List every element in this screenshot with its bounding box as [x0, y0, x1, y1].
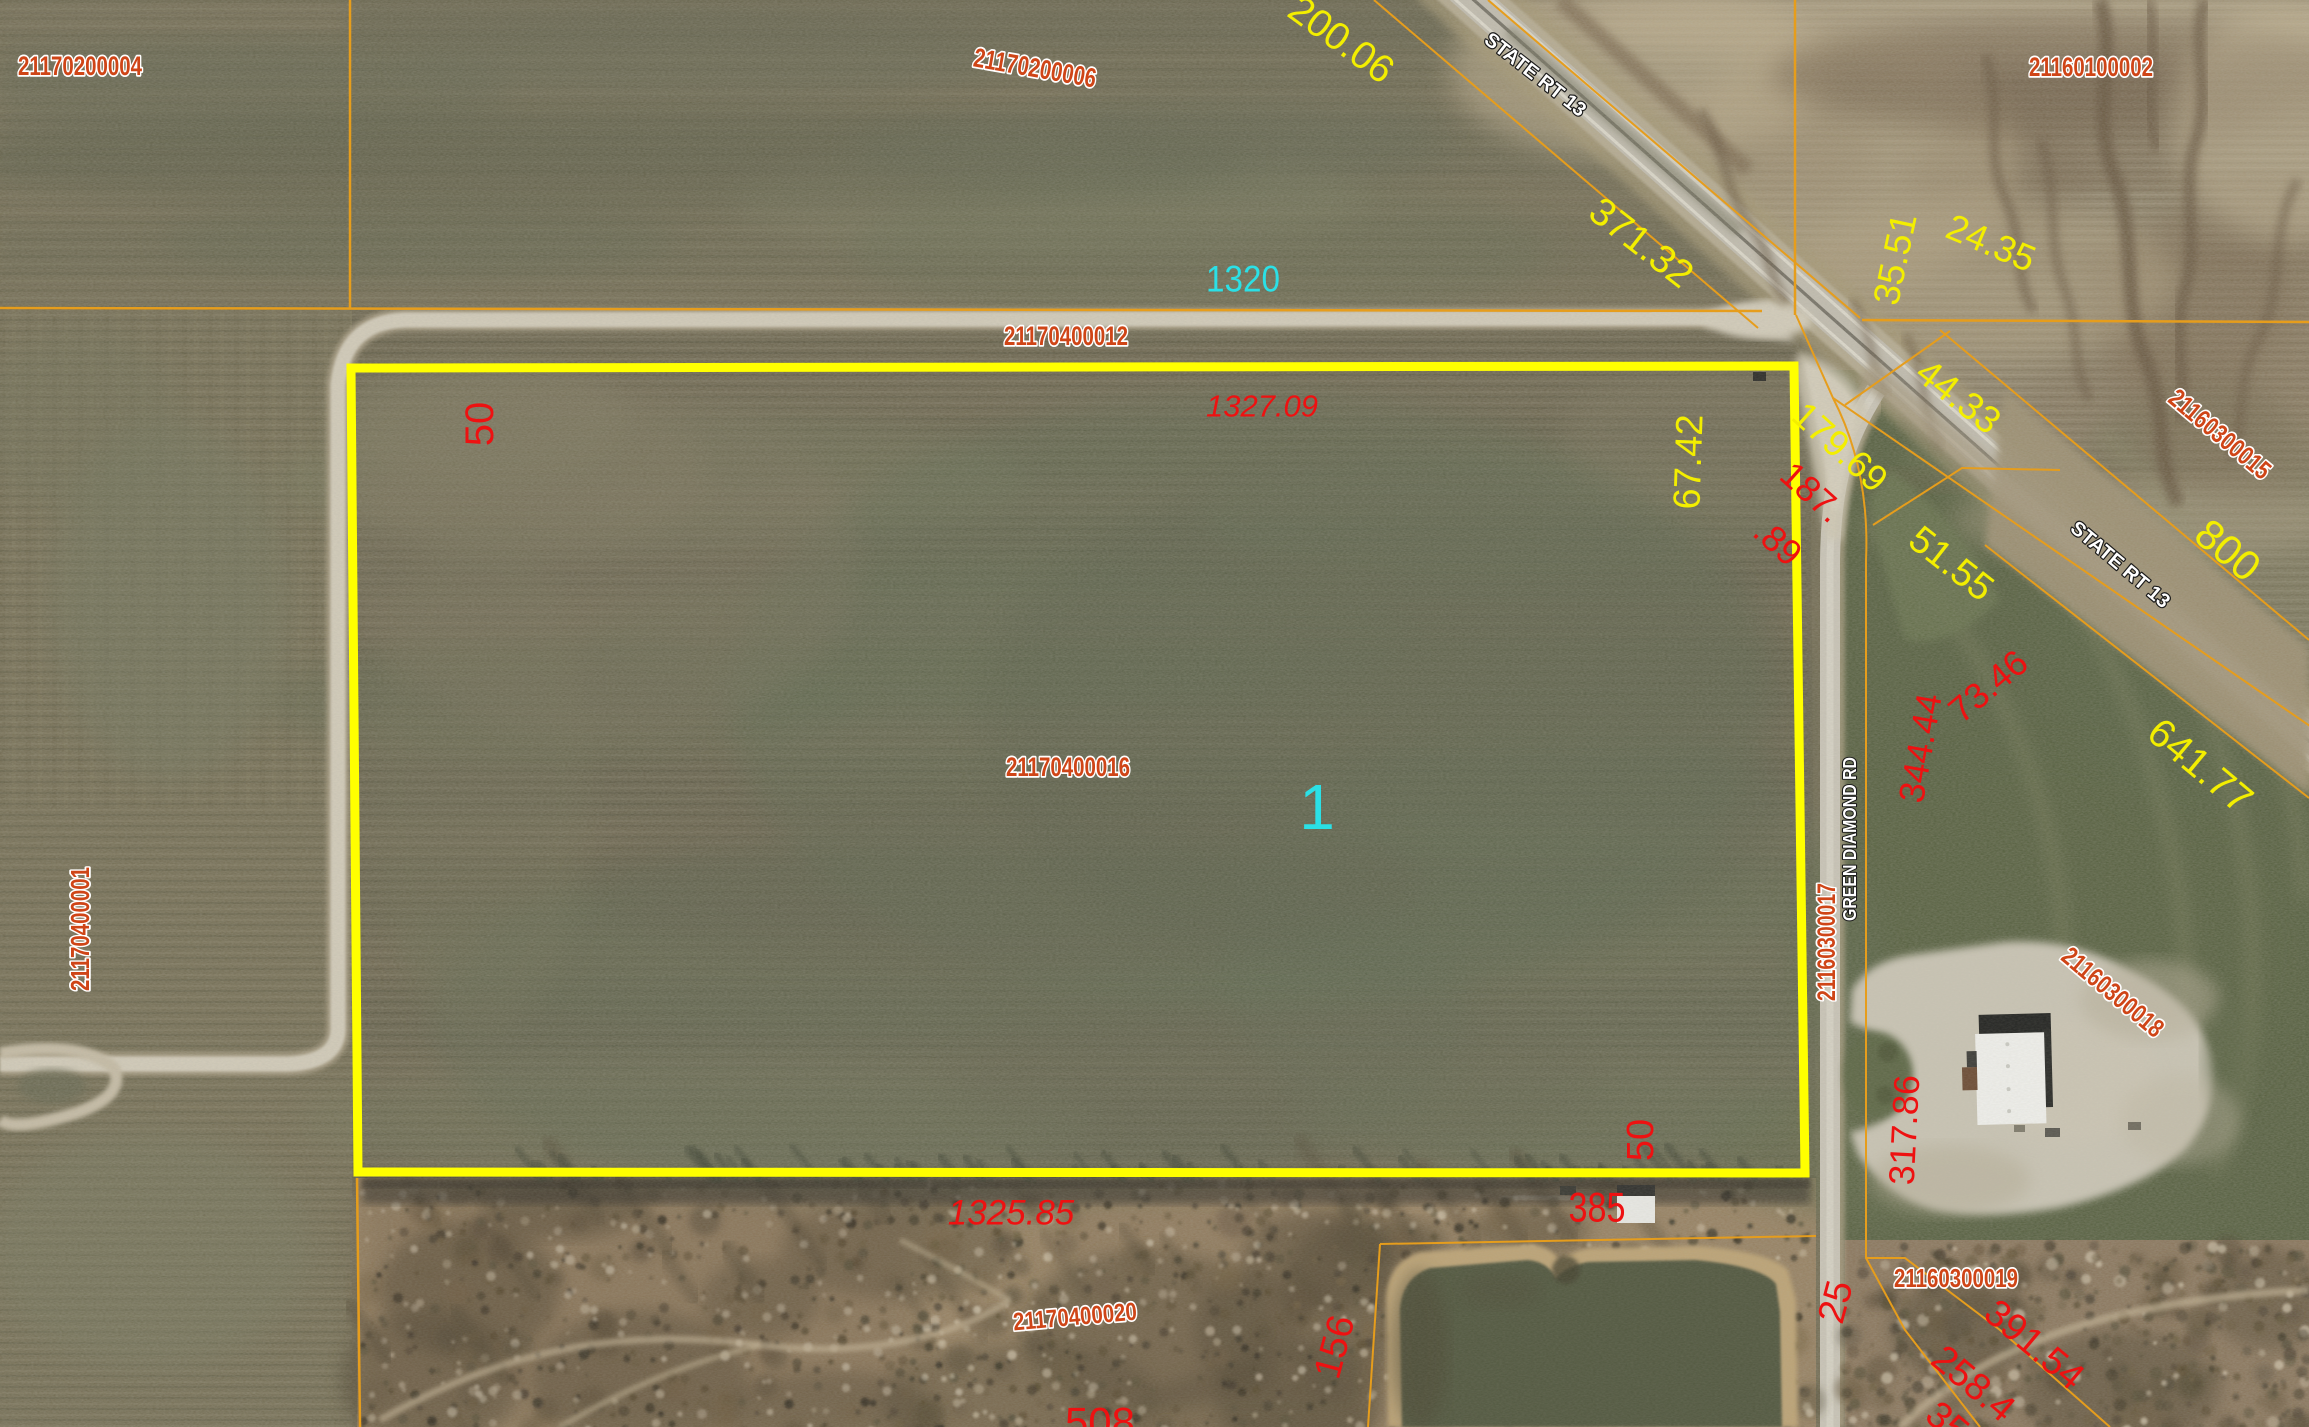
svg-text:1320: 1320: [1206, 259, 1280, 300]
svg-text:21160300017: 21160300017: [1813, 883, 1841, 1001]
svg-text:1: 1: [1299, 771, 1335, 843]
svg-text:21170400016: 21170400016: [1006, 752, 1130, 782]
svg-text:50: 50: [1620, 1119, 1662, 1161]
svg-text:1327.09: 1327.09: [1206, 389, 1318, 424]
svg-text:317.86: 317.86: [1881, 1074, 1928, 1186]
svg-text:21160100002: 21160100002: [2029, 52, 2153, 82]
svg-text:50: 50: [458, 402, 502, 447]
svg-text:21170200004: 21170200004: [18, 51, 142, 81]
svg-text:508: 508: [1065, 1399, 1135, 1427]
svg-text:GREEN DIAMOND RD: GREEN DIAMOND RD: [1840, 757, 1860, 921]
svg-text:67.42: 67.42: [1666, 414, 1711, 511]
svg-text:21170400001: 21170400001: [65, 867, 95, 991]
svg-text:385: 385: [1569, 1184, 1626, 1231]
svg-text:21160300019: 21160300019: [1894, 1263, 2018, 1293]
svg-text:21170400012: 21170400012: [1004, 321, 1128, 351]
svg-text:1325.85: 1325.85: [948, 1194, 1075, 1233]
